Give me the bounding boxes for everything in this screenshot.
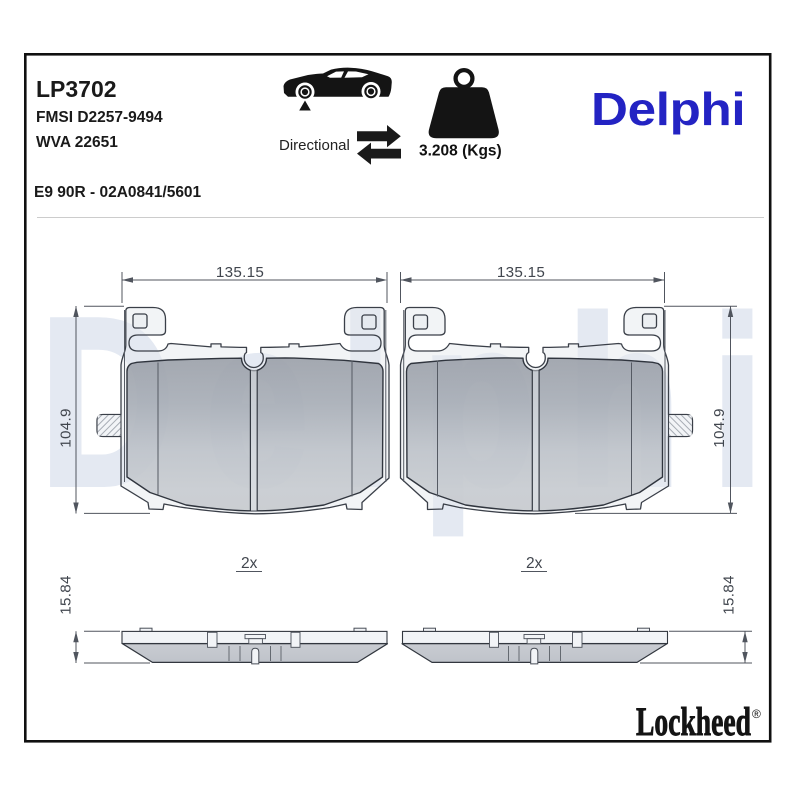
svg-text:135.15: 135.15: [497, 264, 545, 281]
svg-text:135.15: 135.15: [216, 264, 264, 281]
svg-text:3.208 (Kgs): 3.208 (Kgs): [419, 143, 502, 160]
svg-text:WVA 22651: WVA 22651: [36, 134, 118, 151]
svg-text:E9 90R - 02A0841/5601: E9 90R - 02A0841/5601: [34, 184, 202, 201]
svg-text:FMSI D2257-9494: FMSI D2257-9494: [36, 109, 163, 126]
svg-text:104.9: 104.9: [58, 408, 75, 448]
svg-text:15.84: 15.84: [58, 575, 75, 615]
svg-text:®: ®: [752, 707, 761, 721]
svg-text:2x: 2x: [241, 555, 258, 572]
svg-text:104.9: 104.9: [711, 408, 728, 448]
svg-text:LP3702: LP3702: [36, 76, 117, 102]
svg-text:Delphi: Delphi: [591, 84, 745, 135]
svg-text:Lockheed: Lockheed: [636, 700, 751, 744]
svg-text:2x: 2x: [526, 555, 543, 572]
svg-text:Directional: Directional: [279, 137, 350, 154]
svg-text:15.84: 15.84: [721, 575, 738, 615]
